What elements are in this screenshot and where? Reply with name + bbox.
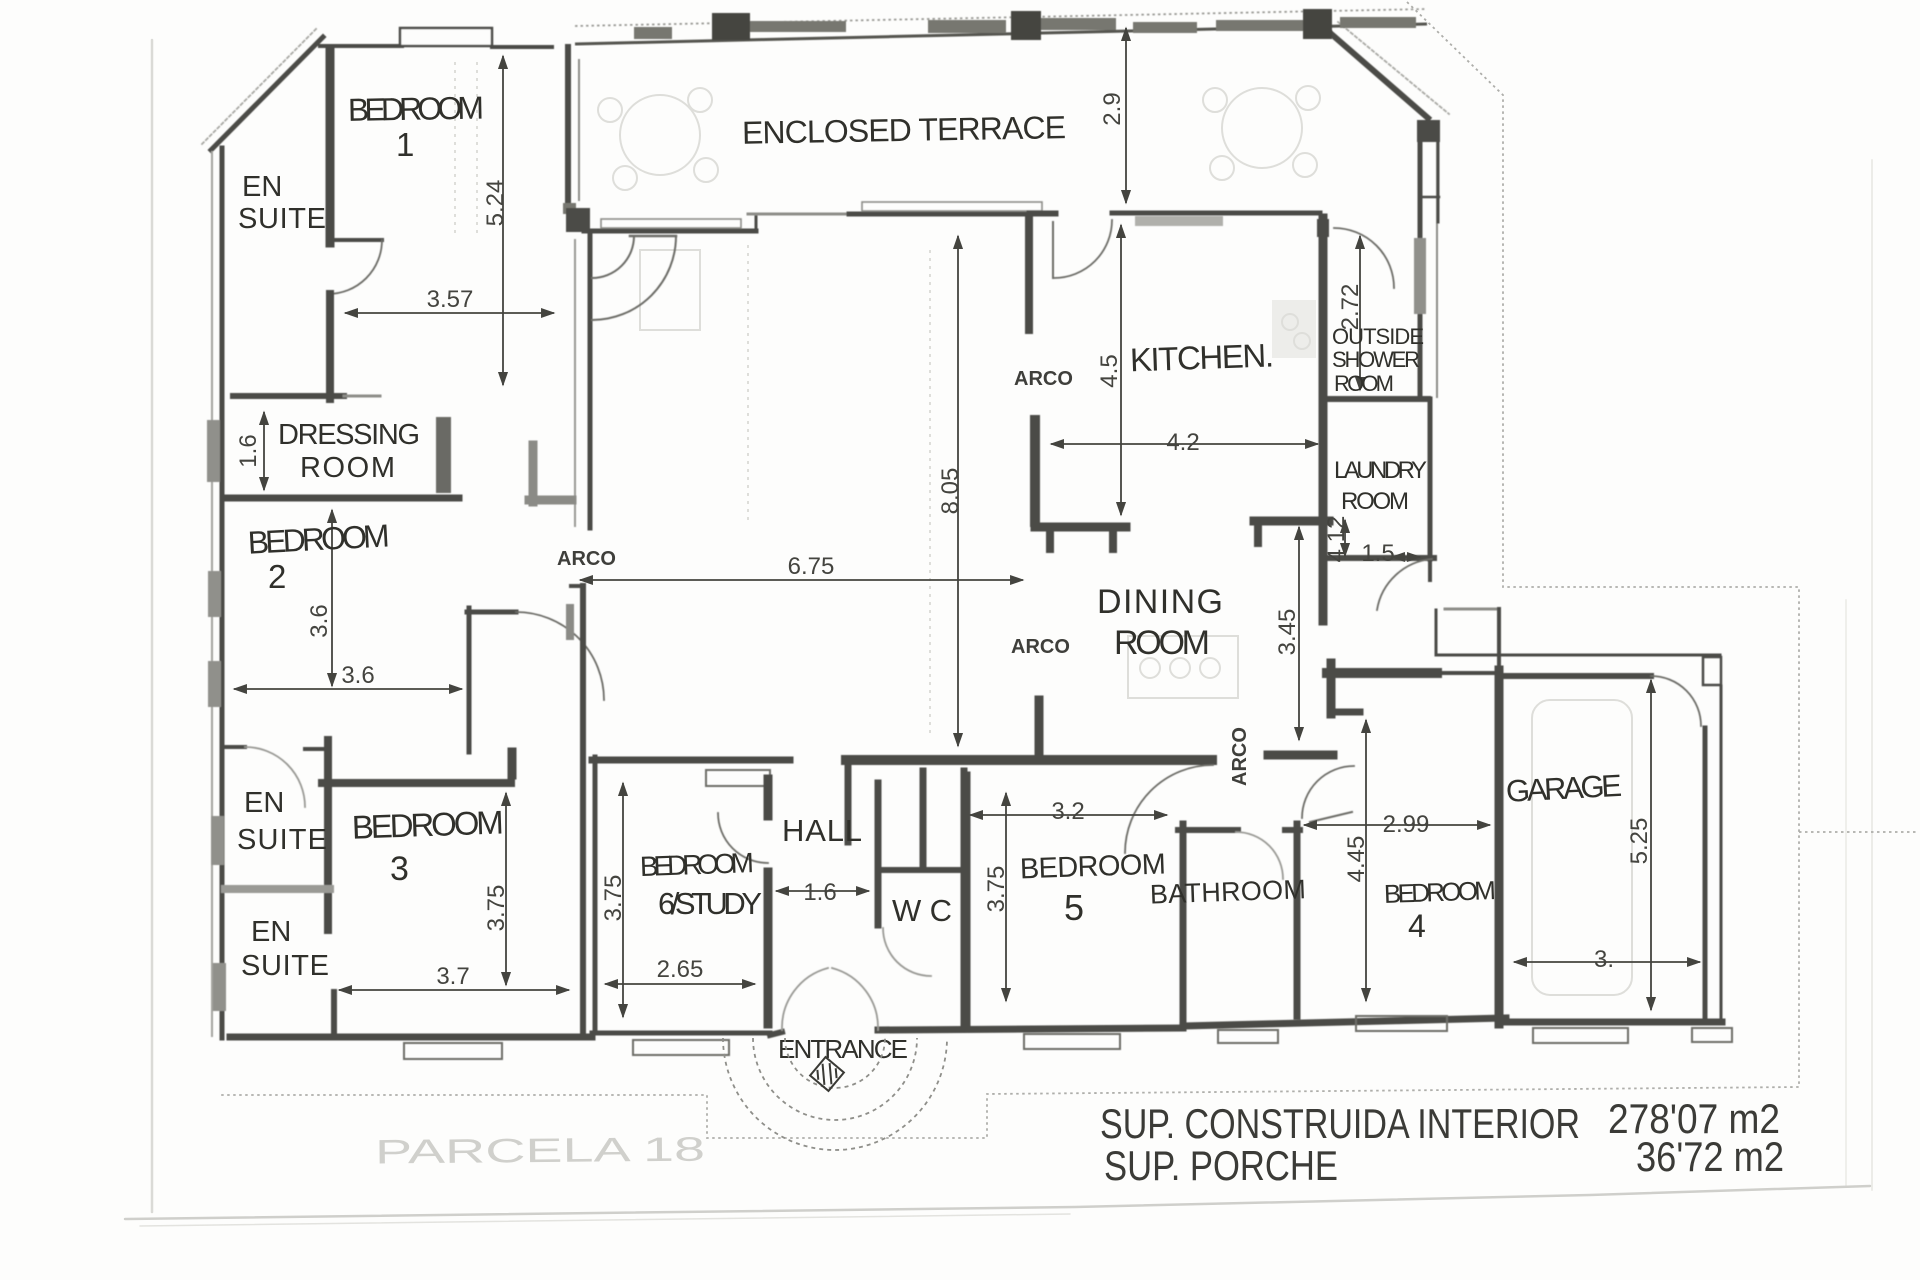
svg-text:EN: EN — [242, 171, 282, 203]
svg-text:1.6: 1.6 — [235, 434, 262, 467]
svg-text:4.12: 4.12 — [1323, 516, 1350, 563]
svg-text:36'72 m2: 36'72 m2 — [1636, 1133, 1784, 1180]
svg-text:4.2: 4.2 — [1166, 429, 1199, 456]
svg-text:4: 4 — [1408, 908, 1426, 944]
svg-text:1: 1 — [396, 126, 414, 163]
svg-text:ROOM: ROOM — [1341, 488, 1409, 515]
svg-text:5.24: 5.24 — [482, 180, 509, 227]
svg-text:BEDROOM: BEDROOM — [351, 803, 504, 845]
svg-text:3.75: 3.75 — [983, 866, 1010, 913]
svg-text:6/STUDY: 6/STUDY — [658, 886, 762, 921]
svg-text:KITCHEN.: KITCHEN. — [1129, 336, 1274, 378]
svg-text:5.25: 5.25 — [1626, 818, 1653, 865]
svg-text:DRESSING: DRESSING — [278, 419, 420, 451]
svg-text:3.75: 3.75 — [483, 885, 510, 932]
svg-text:SUP. PORCHE: SUP. PORCHE — [1104, 1142, 1338, 1189]
svg-text:3.6: 3.6 — [341, 662, 374, 689]
svg-text:1.6: 1.6 — [803, 879, 836, 906]
svg-text:2.99: 2.99 — [1383, 811, 1430, 838]
svg-text:ROOM: ROOM — [300, 452, 395, 484]
svg-text:3.75: 3.75 — [600, 875, 627, 922]
svg-text:ROOM: ROOM — [1334, 371, 1394, 396]
svg-text:BEDROOM: BEDROOM — [1383, 875, 1496, 909]
svg-text:3.45: 3.45 — [1274, 609, 1301, 656]
svg-text:ARCO: ARCO — [1229, 727, 1251, 786]
svg-text:3.6: 3.6 — [306, 604, 333, 637]
svg-text:ARCO: ARCO — [1011, 636, 1070, 658]
svg-text:3.57: 3.57 — [427, 286, 474, 313]
svg-text:EN: EN — [244, 787, 284, 819]
svg-text:HALL: HALL — [782, 813, 862, 848]
svg-text:3: 3 — [390, 850, 409, 888]
svg-text:BEDROOM: BEDROOM — [348, 90, 485, 128]
svg-text:3.2: 3.2 — [1051, 798, 1084, 825]
svg-text:SUITE: SUITE — [238, 203, 326, 235]
svg-text:ENCLOSED TERRACE: ENCLOSED TERRACE — [742, 109, 1067, 151]
svg-text:SHOWER: SHOWER — [1332, 347, 1420, 372]
svg-text:DINING: DINING — [1097, 583, 1223, 621]
svg-text:LAUNDRY: LAUNDRY — [1334, 457, 1427, 484]
svg-text:4.45: 4.45 — [1343, 836, 1370, 883]
svg-text:3.7: 3.7 — [436, 963, 469, 990]
svg-text:SUP. CONSTRUIDA INTERIOR: SUP. CONSTRUIDA INTERIOR — [1100, 1100, 1580, 1147]
svg-text:BEDROOM: BEDROOM — [639, 847, 754, 882]
svg-text:SUITE: SUITE — [241, 950, 329, 982]
svg-text:ROOM: ROOM — [1114, 624, 1210, 662]
svg-text:8.05: 8.05 — [937, 468, 964, 515]
svg-text:SUITE: SUITE — [237, 824, 327, 856]
svg-text:2.65: 2.65 — [657, 956, 704, 983]
svg-text:5: 5 — [1064, 887, 1084, 928]
svg-text:2: 2 — [268, 558, 286, 595]
svg-text:BEDROOM: BEDROOM — [247, 517, 391, 560]
svg-text:BEDROOM: BEDROOM — [1019, 848, 1166, 885]
svg-text:ARCO: ARCO — [557, 548, 616, 570]
svg-text:3.: 3. — [1594, 946, 1614, 973]
svg-text:OUTSIDE: OUTSIDE — [1332, 324, 1424, 349]
svg-text:EN: EN — [251, 916, 291, 948]
svg-text:GARAGE: GARAGE — [1505, 768, 1623, 809]
svg-text:W C: W C — [892, 893, 952, 928]
svg-text:2.9: 2.9 — [1099, 92, 1126, 125]
svg-text:ENTRANCE: ENTRANCE — [778, 1034, 908, 1064]
svg-text:6.75: 6.75 — [788, 553, 835, 580]
svg-text:4.5: 4.5 — [1096, 354, 1123, 387]
svg-text:1.5: 1.5 — [1361, 540, 1394, 567]
svg-text:PARCELA 18: PARCELA 18 — [375, 1131, 705, 1172]
svg-text:ARCO: ARCO — [1014, 368, 1073, 390]
svg-text:BATHROOM: BATHROOM — [1149, 874, 1306, 909]
